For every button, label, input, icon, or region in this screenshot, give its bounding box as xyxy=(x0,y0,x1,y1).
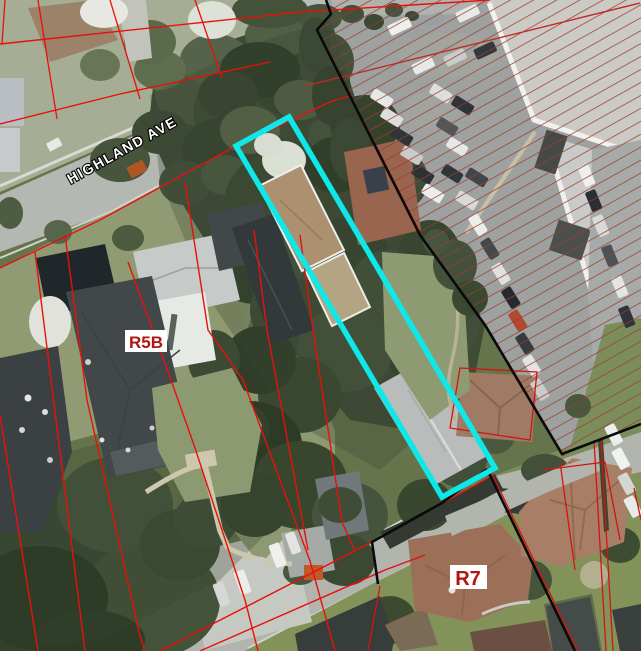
svg-text:R5B: R5B xyxy=(129,333,163,352)
svg-text:R7: R7 xyxy=(455,568,481,590)
